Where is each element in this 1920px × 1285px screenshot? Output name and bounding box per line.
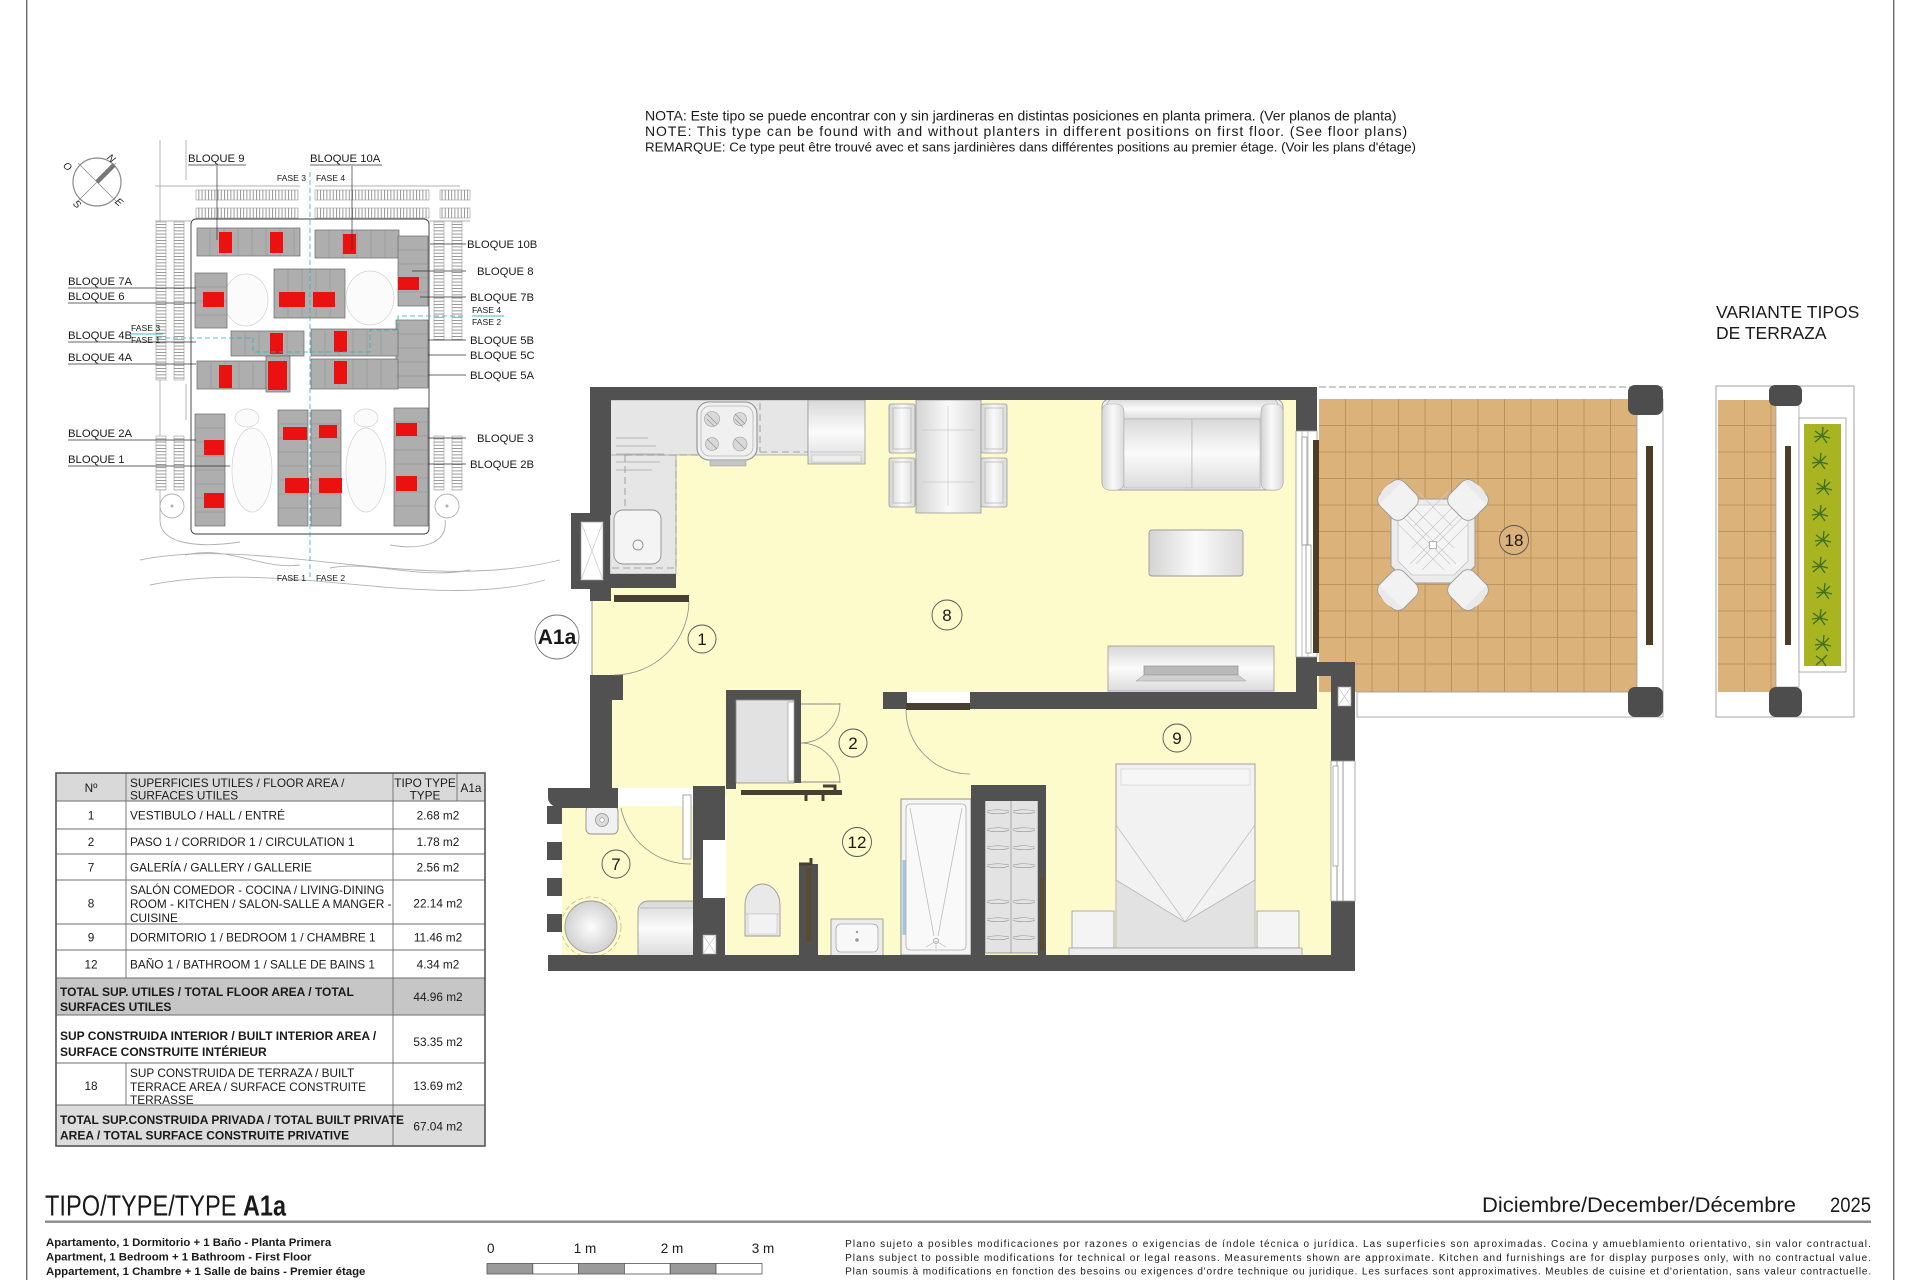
svg-text:FASE 1: FASE 1 bbox=[131, 335, 160, 345]
svg-text:8: 8 bbox=[942, 606, 951, 625]
svg-text:REMARQUE: Ce type peut être tr: REMARQUE: Ce type peut être trouvé avec … bbox=[645, 140, 1416, 155]
svg-text:Plan soumis à modifications en: Plan soumis à modifications en fonction … bbox=[845, 1267, 1872, 1278]
svg-text:SALÓN COMEDOR - COCINA / LIVI: SALÓN COMEDOR - COCINA / LIVING-DINING bbox=[130, 883, 384, 897]
svg-text:53.35 m2: 53.35 m2 bbox=[413, 1035, 462, 1049]
svg-text:18: 18 bbox=[1505, 531, 1524, 550]
svg-text:BLOQUE 4A: BLOQUE 4A bbox=[68, 352, 133, 364]
svg-text:3 m: 3 m bbox=[752, 1241, 775, 1256]
svg-text:TYPE: TYPE bbox=[410, 789, 441, 803]
svg-text:NOTA: Este tipo se puede encon: NOTA: Este tipo se puede encontrar con y… bbox=[645, 108, 1397, 124]
svg-text:A1a: A1a bbox=[461, 781, 482, 795]
svg-text:4.34 m2: 4.34 m2 bbox=[417, 958, 460, 972]
svg-text:A1a: A1a bbox=[243, 1191, 287, 1223]
svg-text:22.14 m2: 22.14 m2 bbox=[413, 897, 462, 911]
svg-text:FASE 3: FASE 3 bbox=[131, 323, 160, 333]
svg-text:FASE 2: FASE 2 bbox=[316, 573, 345, 583]
svg-text:CUISINE: CUISINE bbox=[130, 911, 178, 925]
svg-text:12: 12 bbox=[84, 958, 97, 972]
svg-text:GALERÍA / GALLERY / GALLERIE: GALERÍA / GALLERY / GALLERIE bbox=[130, 861, 312, 875]
svg-text:SURFACE CONSTRUITE INTÉRIEUR: SURFACE CONSTRUITE INTÉRIEUR bbox=[60, 1044, 267, 1059]
svg-text:BLOQUE 1: BLOQUE 1 bbox=[68, 454, 125, 466]
svg-text:BLOQUE 5C: BLOQUE 5C bbox=[470, 350, 535, 362]
svg-text:SURFACES UTILES: SURFACES UTILES bbox=[60, 1000, 171, 1014]
svg-text:ROOM - KITCHEN / SALON-SALLE A: ROOM - KITCHEN / SALON-SALLE A MANGER - bbox=[130, 897, 392, 911]
svg-text:BLOQUE 7A: BLOQUE 7A bbox=[68, 276, 133, 288]
svg-text:BLOQUE 4B: BLOQUE 4B bbox=[68, 330, 132, 342]
svg-text:SUP CONSTRUIDA DE TERRAZA /: SUP CONSTRUIDA DE TERRAZA / BUILT bbox=[130, 1066, 354, 1080]
svg-text:2 m: 2 m bbox=[661, 1241, 684, 1256]
svg-text:BLOQUE 10B: BLOQUE 10B bbox=[467, 239, 537, 251]
svg-text:FASE 4: FASE 4 bbox=[472, 305, 501, 315]
svg-text:2025: 2025 bbox=[1830, 1193, 1871, 1217]
svg-text:7: 7 bbox=[88, 861, 95, 875]
svg-text:BLOQUE 2B: BLOQUE 2B bbox=[470, 459, 534, 471]
svg-text:Apartamento, 1 Dormitorio + 1: Apartamento, 1 Dormitorio + 1 Baño - Pla… bbox=[46, 1237, 332, 1249]
svg-text:PASO 1 / CORRIDOR 1 / CIRCULAT: PASO 1 / CORRIDOR 1 / CIRCULATION 1 bbox=[130, 835, 354, 849]
svg-text:TIPO/TYPE/TYPE: TIPO/TYPE/TYPE bbox=[45, 1191, 243, 1223]
svg-text:1: 1 bbox=[697, 630, 706, 649]
svg-text:TERRASSE: TERRASSE bbox=[130, 1093, 194, 1107]
svg-text:BLOQUE 3: BLOQUE 3 bbox=[477, 433, 534, 445]
svg-text:A1a: A1a bbox=[538, 626, 577, 649]
svg-text:DE TERRAZA: DE TERRAZA bbox=[1716, 323, 1827, 343]
svg-text:2.56 m2: 2.56 m2 bbox=[417, 861, 460, 875]
svg-text:2: 2 bbox=[848, 734, 857, 753]
svg-text:0: 0 bbox=[487, 1241, 495, 1256]
svg-text:BLOQUE 2A: BLOQUE 2A bbox=[68, 428, 133, 440]
svg-text:AREA / TOTAL SURFACE CONSTRUIT: AREA / TOTAL SURFACE CONSTRUITE PRIVATIV… bbox=[60, 1129, 349, 1143]
svg-text:44.96 m2: 44.96 m2 bbox=[413, 990, 462, 1004]
svg-text:Diciembre/December/Décembre: Diciembre/December/Décembre bbox=[1482, 1193, 1796, 1217]
svg-text:Plano sujeto a posibles modifi: Plano sujeto a posibles modificaciones p… bbox=[845, 1239, 1872, 1250]
svg-text:1: 1 bbox=[88, 809, 95, 823]
svg-text:BLOQUE 6: BLOQUE 6 bbox=[68, 291, 125, 303]
svg-text:FASE 2: FASE 2 bbox=[472, 317, 501, 327]
svg-text:2: 2 bbox=[88, 835, 95, 849]
svg-text:FASE 4: FASE 4 bbox=[316, 173, 345, 183]
svg-text:Nº: Nº bbox=[85, 781, 99, 795]
svg-text:BAÑO 1 / BATHROOM 1 / SALLE DE: BAÑO 1 / BATHROOM 1 / SALLE DE BAINS 1 bbox=[130, 958, 375, 972]
svg-text:SUP CONSTRUIDA INTERIOR / BUIL: SUP CONSTRUIDA INTERIOR / BUILT INTERIOR… bbox=[60, 1029, 377, 1043]
svg-text:BLOQUE 10A: BLOQUE 10A bbox=[310, 153, 381, 165]
svg-text:BLOQUE 8: BLOQUE 8 bbox=[477, 266, 534, 278]
svg-text:SURFACES UTILES: SURFACES UTILES bbox=[130, 789, 238, 803]
svg-text:Appartement, 1 Chambre + 1 Sal: Appartement, 1 Chambre + 1 Salle de bain… bbox=[46, 1266, 365, 1278]
svg-text:TOTAL SUP.CONSTRUIDA PRIVADA /: TOTAL SUP.CONSTRUIDA PRIVADA / TOTAL BUI… bbox=[60, 1113, 404, 1127]
svg-text:BLOQUE 7B: BLOQUE 7B bbox=[470, 292, 534, 304]
svg-text:1.78 m2: 1.78 m2 bbox=[417, 835, 460, 849]
svg-text:TERRACE AREA / SURFACE CONSTR: TERRACE AREA / SURFACE CONSTRUITE bbox=[130, 1080, 366, 1094]
svg-text:Plans subject to possible modi: Plans subject to possible modifications … bbox=[845, 1253, 1872, 1264]
svg-text:DORMITORIO 1 / BEDROOM 1 / CHA: DORMITORIO 1 / BEDROOM 1 / CHAMBRE 1 bbox=[130, 931, 376, 945]
svg-text:TOTAL SUP. UTILES / TOTAL FLOO: TOTAL SUP. UTILES / TOTAL FLOOR AREA / T… bbox=[60, 985, 354, 999]
svg-text:1 m: 1 m bbox=[574, 1241, 597, 1256]
svg-text:12: 12 bbox=[848, 833, 867, 852]
svg-text:11.46 m2: 11.46 m2 bbox=[414, 931, 462, 945]
svg-text:8: 8 bbox=[88, 897, 95, 911]
svg-text:2.68 m2: 2.68 m2 bbox=[417, 809, 460, 823]
svg-text:VARIANTE TIPOS: VARIANTE TIPOS bbox=[1716, 302, 1859, 322]
svg-text:FASE 3: FASE 3 bbox=[277, 173, 306, 183]
svg-text:Apartment, 1 Bedroom + 1 Bathr: Apartment, 1 Bedroom + 1 Bathroom - Firs… bbox=[46, 1252, 312, 1264]
svg-text:BLOQUE 5B: BLOQUE 5B bbox=[470, 335, 534, 347]
svg-text:67.04 m2: 67.04 m2 bbox=[413, 1120, 462, 1134]
svg-text:NOTE: This type can be found w: NOTE: This type can be found with and wi… bbox=[645, 123, 1408, 139]
svg-text:BLOQUE 9: BLOQUE 9 bbox=[188, 153, 245, 165]
svg-text:FASE 1: FASE 1 bbox=[277, 573, 306, 583]
svg-text:VESTIBULO / HALL / ENTRÉ: VESTIBULO / HALL / ENTRÉ bbox=[130, 809, 285, 823]
svg-text:13.69 m2: 13.69 m2 bbox=[413, 1079, 462, 1093]
svg-text:9: 9 bbox=[1172, 729, 1181, 748]
svg-text:18: 18 bbox=[84, 1079, 98, 1093]
svg-text:9: 9 bbox=[88, 931, 95, 945]
svg-text:7: 7 bbox=[611, 855, 620, 874]
svg-text:BLOQUE 5A: BLOQUE 5A bbox=[470, 370, 535, 382]
